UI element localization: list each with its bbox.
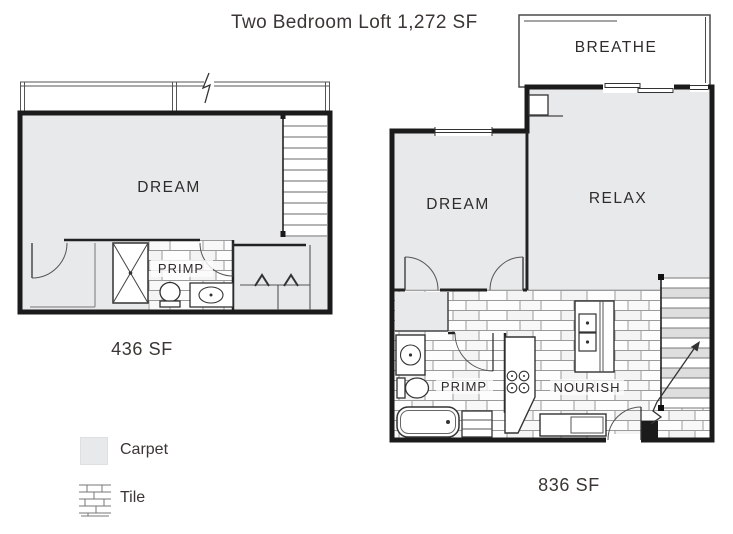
- room-label-primp-upper: PRIMP: [158, 261, 204, 276]
- legend-carpet-label: Carpet: [120, 441, 168, 459]
- room-label-primp-main: PRIMP: [441, 379, 487, 394]
- toilet-icon: [397, 378, 429, 398]
- main-floor-plan: BREATHE: [385, 10, 715, 444]
- legend-carpet-swatch: [80, 437, 108, 465]
- wall-pier: [641, 421, 658, 442]
- shower-icon: [113, 243, 148, 303]
- bath-cabinet: [462, 411, 492, 437]
- window: [435, 127, 492, 136]
- area-label-main: 836 SF: [514, 475, 624, 496]
- break-line-icon: [203, 73, 210, 103]
- room-label-nourish: NOURISH: [554, 380, 621, 395]
- closet-carpet: [395, 292, 448, 331]
- sliding-door-icon: [603, 82, 674, 93]
- floor-plan-page: Two Bedroom Loft 1,272 SF: [0, 0, 733, 534]
- window-band: [20, 82, 330, 113]
- upper-floor-plan: DREAM PRIMP: [14, 70, 336, 322]
- area-label-upper: 436 SF: [87, 339, 197, 360]
- stairs-icon: [281, 113, 328, 237]
- kitchen-counter: [540, 414, 606, 436]
- sink-icon: [190, 283, 233, 307]
- toilet-icon: [160, 283, 180, 308]
- tile-floor: [660, 408, 710, 438]
- room-label-dream-upper: DREAM: [137, 179, 200, 196]
- legend-tile-swatch: [78, 483, 112, 517]
- bathtub-icon: [397, 407, 459, 437]
- sink-icon: [396, 335, 425, 375]
- window: [690, 83, 708, 92]
- room-label-dream-main: DREAM: [426, 196, 489, 213]
- legend-tile-label: Tile: [120, 489, 145, 507]
- room-label-breathe: BREATHE: [575, 39, 658, 56]
- kitchen-island-icon: [575, 301, 614, 372]
- room-label-relax: RELAX: [589, 190, 647, 207]
